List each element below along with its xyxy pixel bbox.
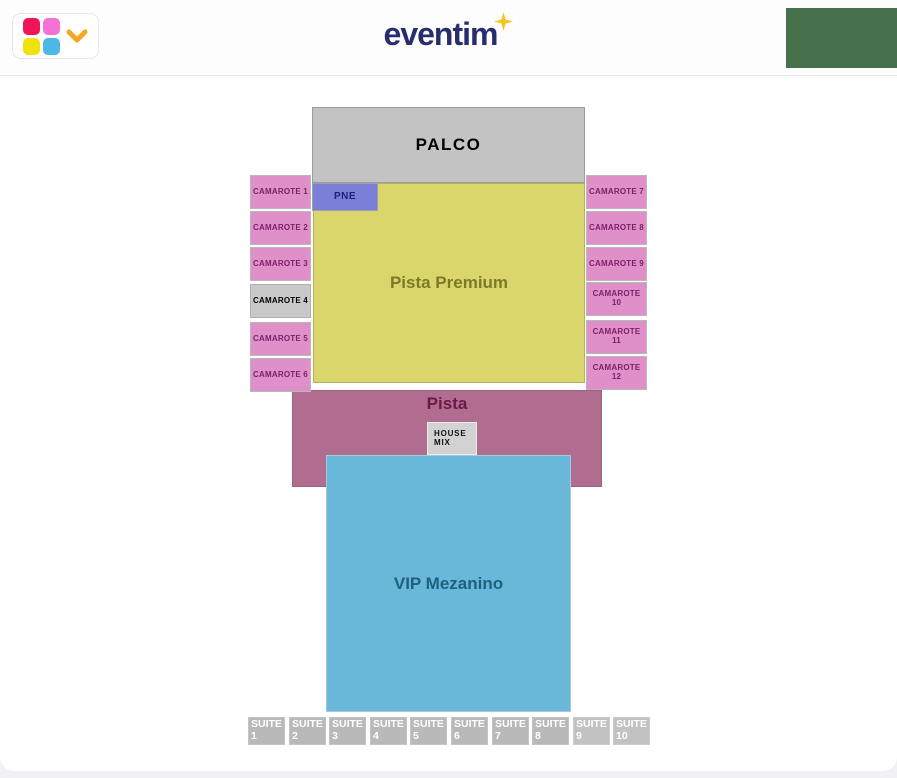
section-label: CAMAROTE 3 [253,260,308,269]
section-suite-4: SUITE 4 [370,717,407,745]
section-label: SUITE 7 [495,719,526,743]
section-palco: PALCO [312,107,585,183]
section-label: CAMAROTE 1 [253,188,308,197]
section-suite-3: SUITE 3 [329,717,366,745]
venue-map: PALCOPista PremiumPNEPistaCAMAROTE 1CAMA… [0,0,897,778]
section-label: SUITE 2 [292,719,323,743]
section-vip-mezanino[interactable]: VIP Mezanino [326,455,571,712]
section-camarote-3[interactable]: CAMAROTE 3 [250,247,311,281]
section-suite-2: SUITE 2 [289,717,326,745]
section-suite-7: SUITE 7 [492,717,529,745]
section-camarote-11[interactable]: CAMAROTE 11 [586,320,647,354]
section-camarote-6[interactable]: CAMAROTE 6 [250,358,311,392]
section-label: HOUSE MIX [434,430,466,448]
section-camarote-2[interactable]: CAMAROTE 2 [250,211,311,245]
section-pne[interactable]: PNE [312,183,378,211]
section-label: CAMAROTE 12 [587,364,646,382]
section-label: Pista Premium [390,273,508,292]
section-label: CAMAROTE 6 [253,371,308,380]
section-label: CAMAROTE 10 [587,290,646,308]
section-camarote-7[interactable]: CAMAROTE 7 [586,175,647,209]
section-label: CAMAROTE 5 [253,335,308,344]
section-label: VIP Mezanino [394,574,503,593]
section-label: CAMAROTE 7 [589,188,644,197]
section-label: CAMAROTE 9 [589,260,644,269]
section-label: SUITE 4 [373,719,404,743]
section-label: SUITE 3 [332,719,363,743]
section-label: PNE [334,191,356,202]
section-camarote-10[interactable]: CAMAROTE 10 [586,282,647,316]
section-camarote-1[interactable]: CAMAROTE 1 [250,175,311,209]
section-label: CAMAROTE 4 [253,297,308,306]
section-label: CAMAROTE 8 [589,224,644,233]
section-suite-5: SUITE 5 [410,717,447,745]
section-pista-premium[interactable]: Pista Premium [313,183,585,383]
section-label: PALCO [416,135,482,154]
section-label: SUITE 8 [535,719,566,743]
section-label: CAMAROTE 11 [587,328,646,346]
section-suite-8: SUITE 8 [532,717,569,745]
section-suite-10: SUITE 10 [613,717,650,745]
section-label: Pista [427,394,468,413]
section-label: SUITE 10 [616,719,647,743]
section-label: SUITE 9 [576,719,607,743]
section-suite-1: SUITE 1 [248,717,285,745]
section-label: SUITE 1 [251,719,282,743]
section-camarote-8[interactable]: CAMAROTE 8 [586,211,647,245]
section-camarote-4: CAMAROTE 4 [250,284,311,318]
section-label: CAMAROTE 2 [253,224,308,233]
section-suite-6: SUITE 6 [451,717,488,745]
section-house-mix: HOUSE MIX [427,422,477,455]
section-label: SUITE 5 [413,719,444,743]
section-camarote-9[interactable]: CAMAROTE 9 [586,247,647,281]
section-suite-9: SUITE 9 [573,717,610,745]
section-camarote-5[interactable]: CAMAROTE 5 [250,322,311,356]
section-label: SUITE 6 [454,719,485,743]
section-camarote-12[interactable]: CAMAROTE 12 [586,356,647,390]
